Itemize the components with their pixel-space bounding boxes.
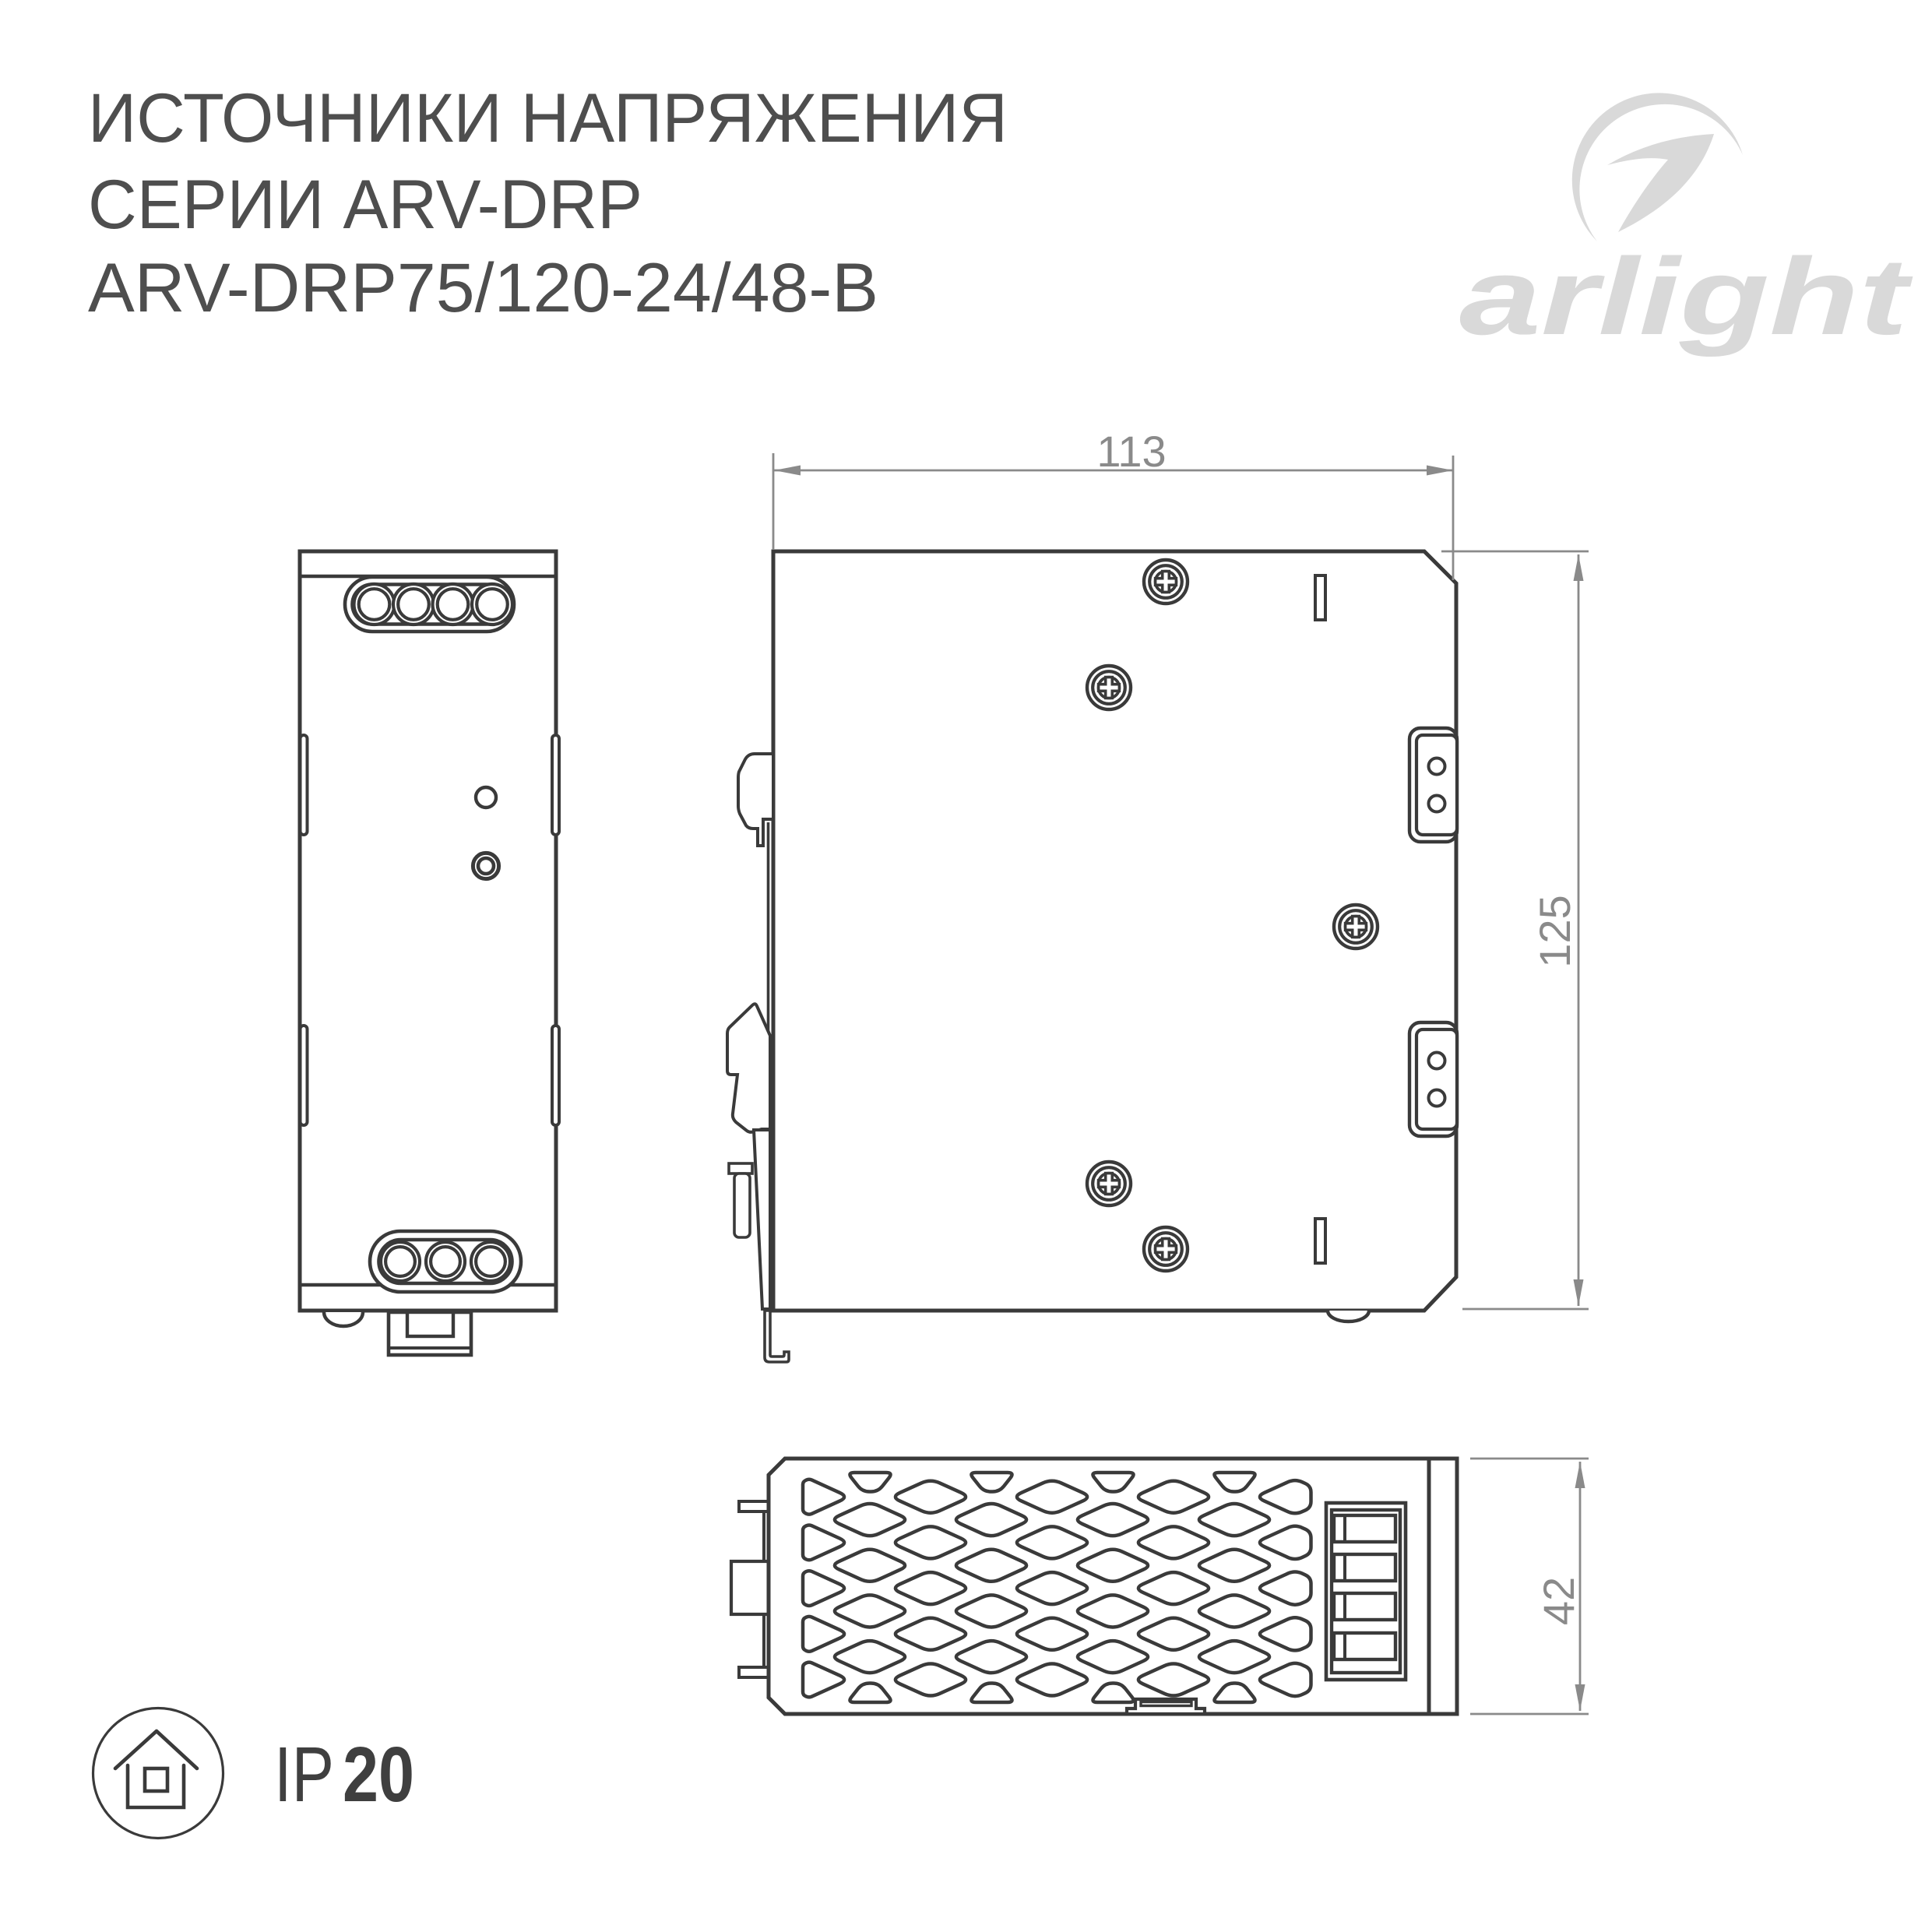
svg-text:125: 125 [1530, 895, 1579, 967]
svg-text:arlight: arlight [1459, 235, 1913, 357]
svg-text:42: 42 [1534, 1577, 1583, 1625]
svg-text:20: 20 [343, 1731, 414, 1818]
svg-text:ARV-DRP75/120-24/48-B: ARV-DRP75/120-24/48-B [88, 248, 878, 326]
svg-text:ИСТОЧНИКИ НАПРЯЖЕНИЯ: ИСТОЧНИКИ НАПРЯЖЕНИЯ [88, 79, 1008, 157]
svg-text:IP: IP [274, 1731, 334, 1818]
svg-text:СЕРИИ ARV-DRP: СЕРИИ ARV-DRP [88, 165, 642, 243]
svg-text:113: 113 [1096, 427, 1166, 476]
